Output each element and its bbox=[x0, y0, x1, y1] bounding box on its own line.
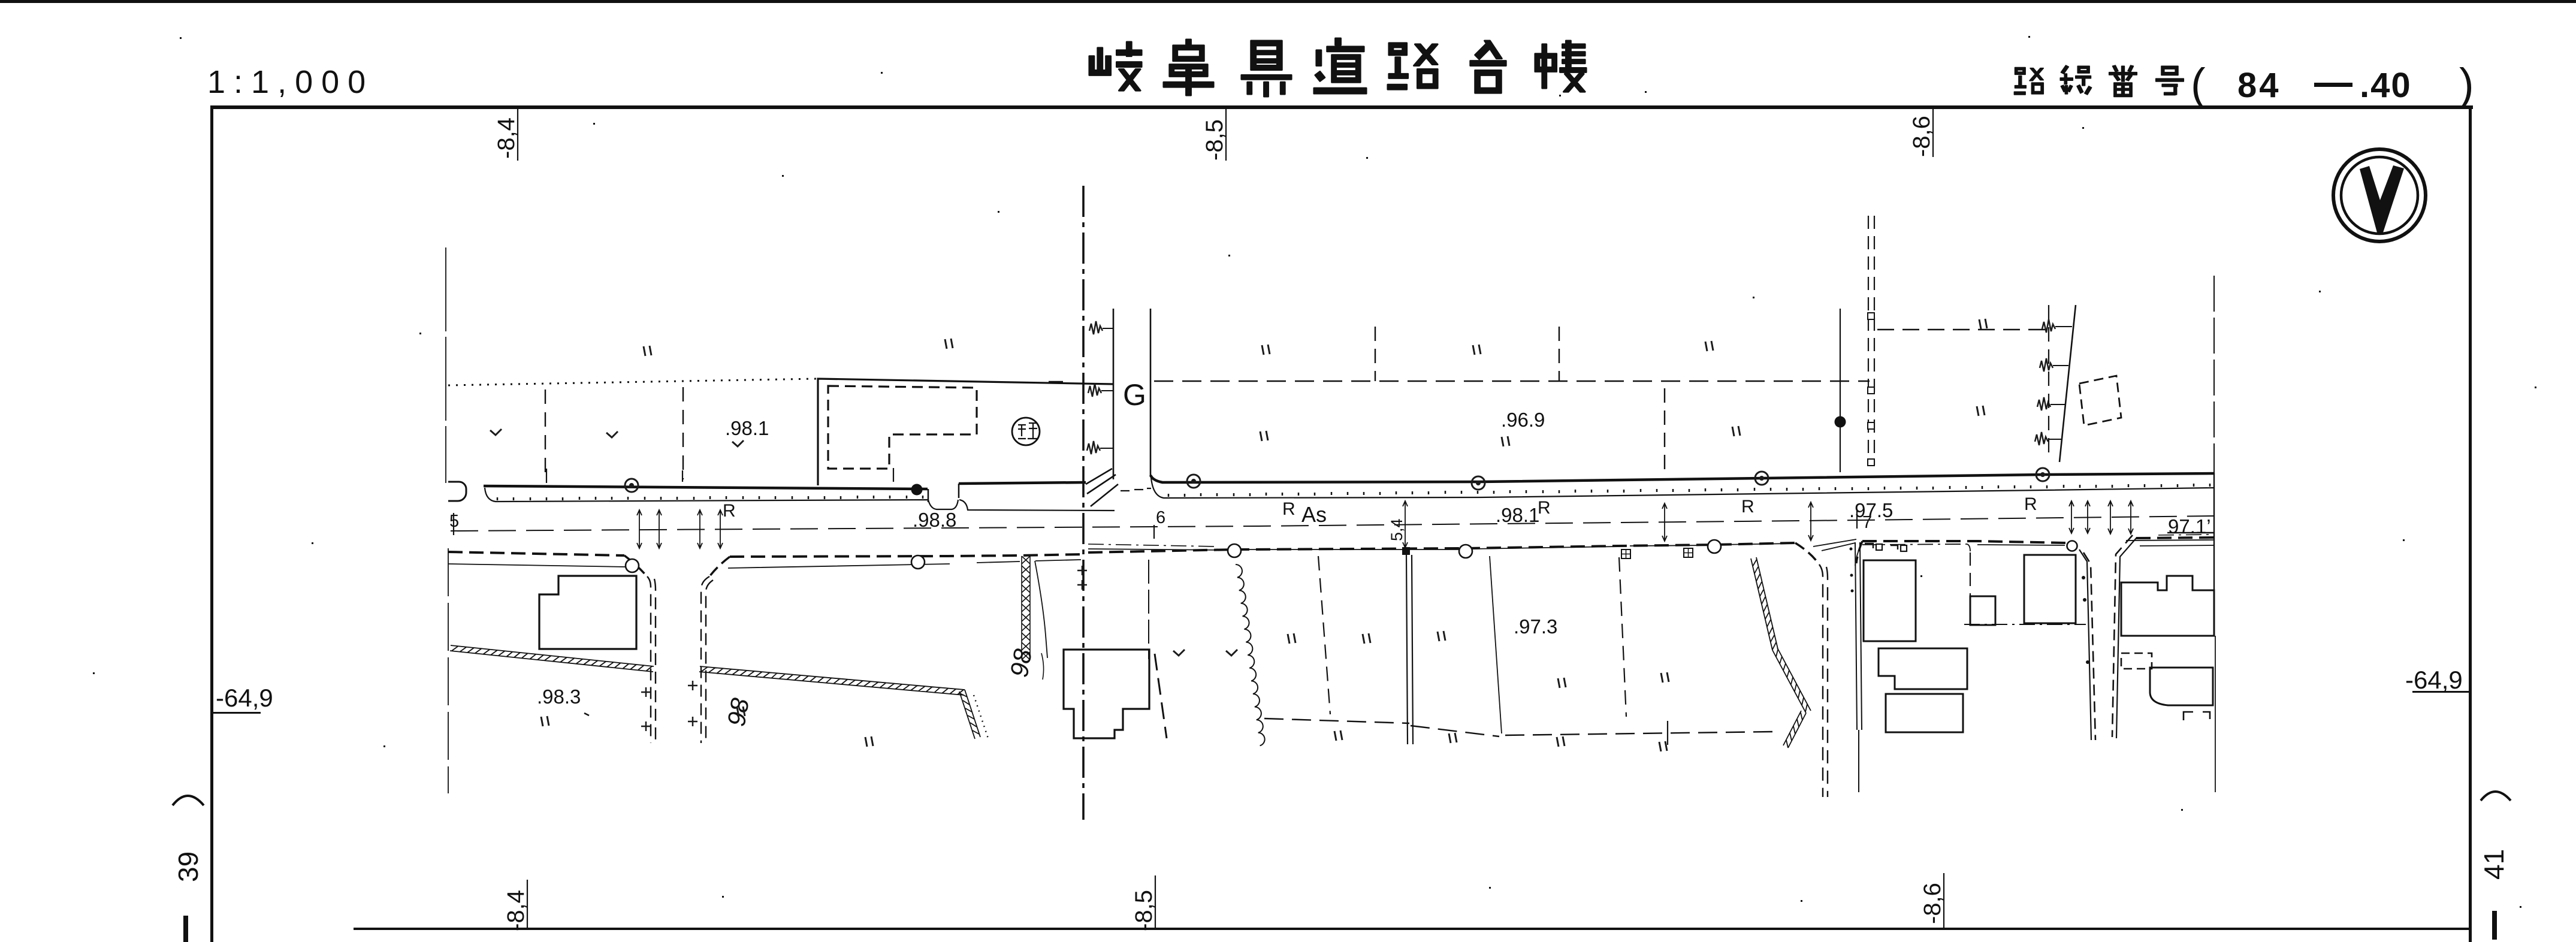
svg-text:.96.9: .96.9 bbox=[1501, 409, 1545, 431]
svg-text:-8,5: -8,5 bbox=[1201, 119, 1228, 161]
svg-text:R: R bbox=[1741, 497, 1754, 517]
svg-text:-8,6: -8,6 bbox=[1908, 116, 1935, 157]
svg-text:): ) bbox=[2459, 59, 2474, 109]
svg-text:-8,6: -8,6 bbox=[1919, 883, 1946, 924]
svg-text:R: R bbox=[2024, 494, 2037, 514]
svg-text:6: 6 bbox=[1156, 508, 1165, 527]
svg-text:(: ( bbox=[2191, 59, 2206, 109]
svg-text:As: As bbox=[1301, 502, 1327, 527]
svg-text:5,4: 5,4 bbox=[1388, 518, 1406, 541]
svg-text:98: 98 bbox=[1005, 647, 1038, 680]
svg-text:-64,9: -64,9 bbox=[216, 684, 273, 712]
svg-text:.98.1: .98.1 bbox=[1496, 504, 1539, 526]
svg-text:G: G bbox=[1123, 378, 1146, 412]
svg-text:5: 5 bbox=[449, 512, 459, 531]
svg-text:-8,4: -8,4 bbox=[503, 890, 529, 931]
svg-text:-8,5: -8,5 bbox=[1131, 890, 1157, 931]
svg-text:41: 41 bbox=[2478, 849, 2509, 880]
svg-text:.97.3: .97.3 bbox=[1514, 615, 1557, 638]
svg-text:.98.8: .98.8 bbox=[913, 509, 956, 531]
svg-text:R: R bbox=[1282, 499, 1295, 519]
svg-text:1:1,000: 1:1,000 bbox=[207, 64, 374, 100]
svg-text:39: 39 bbox=[173, 852, 204, 882]
svg-text:-64,9: -64,9 bbox=[2405, 666, 2463, 694]
svg-text:.98.3: .98.3 bbox=[537, 686, 581, 708]
svg-text:.40: .40 bbox=[2360, 66, 2412, 105]
svg-text:.97.5: .97.5 bbox=[1849, 499, 1893, 521]
svg-text:-8,4: -8,4 bbox=[493, 117, 520, 159]
svg-text:.98.1: .98.1 bbox=[725, 417, 769, 439]
svg-text:R: R bbox=[723, 501, 736, 521]
svg-text:97.1’: 97.1’ bbox=[2168, 515, 2211, 538]
svg-text:84: 84 bbox=[2237, 66, 2281, 105]
